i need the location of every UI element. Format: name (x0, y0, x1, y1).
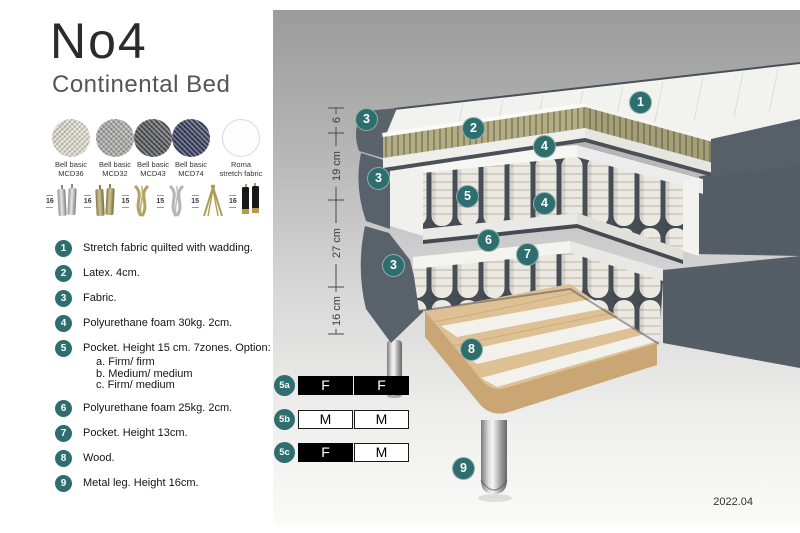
callout-8: 8 (460, 338, 483, 361)
callout-3a: 3 (355, 108, 378, 131)
firmness-box: F M (298, 443, 409, 462)
fabric-swatch: Romastretch fabric (222, 119, 260, 178)
fabric-swatch-circle (52, 119, 90, 157)
legend-text: Pocket. Height 15 cm. 7zones. Option: a.… (83, 340, 271, 392)
legend-item: 8 Wood. (55, 450, 271, 467)
legend-text: Pocket. Height 13cm. (83, 425, 188, 442)
diagram-panel: 6 19 cm 27 cm 16 cm 1 2 3 3 3 4 4 5 6 7 … (273, 10, 800, 525)
legend-number: 3 (55, 290, 72, 307)
fabric-swatches: Bell basicMCD36 Bell basicMCD32 Bell bas… (52, 119, 260, 178)
legend-number: 1 (55, 240, 72, 257)
legend-item: 3 Fabric. (55, 290, 271, 307)
legend-text: Latex. 4cm. (83, 265, 140, 282)
product-sheet: No4 Continental Bed Bell basicMCD36 Bell… (0, 0, 800, 533)
firmness-row-5b: 5b M M (274, 409, 409, 430)
fabric-swatch: Bell basicMCD32 (96, 119, 134, 178)
dimension-label: 27 cm (330, 221, 344, 265)
fabric-swatch-label: Bell basicMCD74 (175, 160, 207, 178)
leg-options: 16 16 15 (46, 183, 265, 219)
fabric-swatch-circle (172, 119, 210, 157)
callout-1: 1 (629, 91, 652, 114)
leg-icon-curved-silver (166, 183, 187, 219)
fabric-swatch-label: Bell basicMCD36 (55, 160, 87, 178)
callout-6: 6 (477, 229, 500, 252)
callout-7: 7 (516, 243, 539, 266)
legend-item: 7 Pocket. Height 13cm. (55, 425, 271, 442)
fabric-swatch-label: Bell basicMCD32 (99, 160, 131, 178)
callout-4a: 4 (533, 135, 556, 158)
legend-text: Polyurethane foam 30kg. 2cm. (83, 315, 232, 332)
dimension-label: 16 cm (330, 289, 344, 333)
callout-9: 9 (452, 457, 475, 480)
leg-icon-hairpin-brass (201, 183, 225, 219)
metal-leg-front (478, 420, 512, 502)
pocket-option: c. Firm/ medium (96, 380, 271, 392)
callout-4b: 4 (533, 192, 556, 215)
legend-text: Fabric. (83, 290, 117, 307)
fabric-swatch: Bell basicMCD74 (172, 119, 210, 178)
callout-3c: 3 (382, 254, 405, 277)
leg-icon-black-brass-tip (239, 183, 261, 219)
dimension-label: 6 (330, 98, 344, 142)
version-stamp: 2022.04 (713, 496, 753, 508)
firmness-box: F F (298, 376, 409, 395)
legend-number: 6 (55, 400, 72, 417)
legend-number: 9 (55, 475, 72, 492)
fabric-swatch-label: Bell basicMCD43 (137, 160, 169, 178)
product-subtitle: Continental Bed (52, 71, 230, 99)
legend-item: 5 Pocket. Height 15 cm. 7zones. Option: … (55, 340, 271, 392)
legend-number: 2 (55, 265, 72, 282)
leg-option: 15 (191, 183, 225, 219)
legend-item: 4 Polyurethane foam 30kg. 2cm. (55, 315, 271, 332)
legend-item: 9 Metal leg. Height 16cm. (55, 475, 271, 492)
leg-option: 16 (229, 183, 261, 219)
legend-number: 4 (55, 315, 72, 332)
firmness-id: 5b (274, 409, 295, 430)
legend-item: 6 Polyurethane foam 25kg. 2cm. (55, 400, 271, 417)
firmness-cell: M (354, 410, 409, 429)
firmness-cell: F (354, 376, 409, 395)
box-fabric-right (663, 256, 800, 368)
leg-icon-cylinder-silver (56, 183, 80, 219)
legend-item: 1 Stretch fabric quilted with wadding. (55, 240, 271, 257)
legend-number: 7 (55, 425, 72, 442)
fabric-swatch: Bell basicMCD36 (52, 119, 90, 178)
legend-text: Stretch fabric quilted with wadding. (83, 240, 253, 257)
pocket-option: a. Firm/ firm (96, 357, 271, 369)
box-fabric-corner (361, 226, 423, 343)
firmness-row-5c: 5c F M (274, 442, 409, 463)
leg-option: 16 (46, 183, 80, 219)
legend-number: 5 (55, 340, 72, 357)
firmness-id: 5a (274, 375, 295, 396)
leg-option: 15 (122, 183, 153, 219)
construction-legend: 1 Stretch fabric quilted with wadding. 2… (55, 240, 271, 500)
legend-text: Polyurethane foam 25kg. 2cm. (83, 400, 232, 417)
legend-item: 2 Latex. 4cm. (55, 265, 271, 282)
fabric-swatch-circle (96, 119, 134, 157)
callout-5: 5 (456, 185, 479, 208)
fabric-swatch-label: Romastretch fabric (220, 160, 263, 178)
leg-icon-curved-brass (131, 183, 152, 219)
legend-text: Wood. (83, 450, 115, 467)
leg-option: 16 (84, 183, 118, 219)
firmness-cell: F (298, 443, 353, 462)
leg-option: 15 (156, 183, 187, 219)
legend-text: Metal leg. Height 16cm. (83, 475, 199, 492)
fabric-swatch-circle (134, 119, 172, 157)
product-title: No4 (50, 12, 148, 70)
callout-3b: 3 (367, 167, 390, 190)
fabric-swatch: Bell basicMCD43 (134, 119, 172, 178)
info-panel: No4 Continental Bed Bell basicMCD36 Bell… (0, 0, 273, 533)
fabric-swatch-circle (222, 119, 260, 157)
firmness-box: M M (298, 410, 409, 429)
legend-number: 8 (55, 450, 72, 467)
firmness-cell: M (354, 443, 409, 462)
firmness-id: 5c (274, 442, 295, 463)
dimension-label: 19 cm (330, 144, 344, 188)
firmness-row-5a: 5a F F (274, 375, 409, 396)
firmness-cell: M (298, 410, 353, 429)
leg-icon-cylinder-brass (94, 183, 118, 219)
callout-2: 2 (462, 117, 485, 140)
firmness-cell: F (298, 376, 353, 395)
